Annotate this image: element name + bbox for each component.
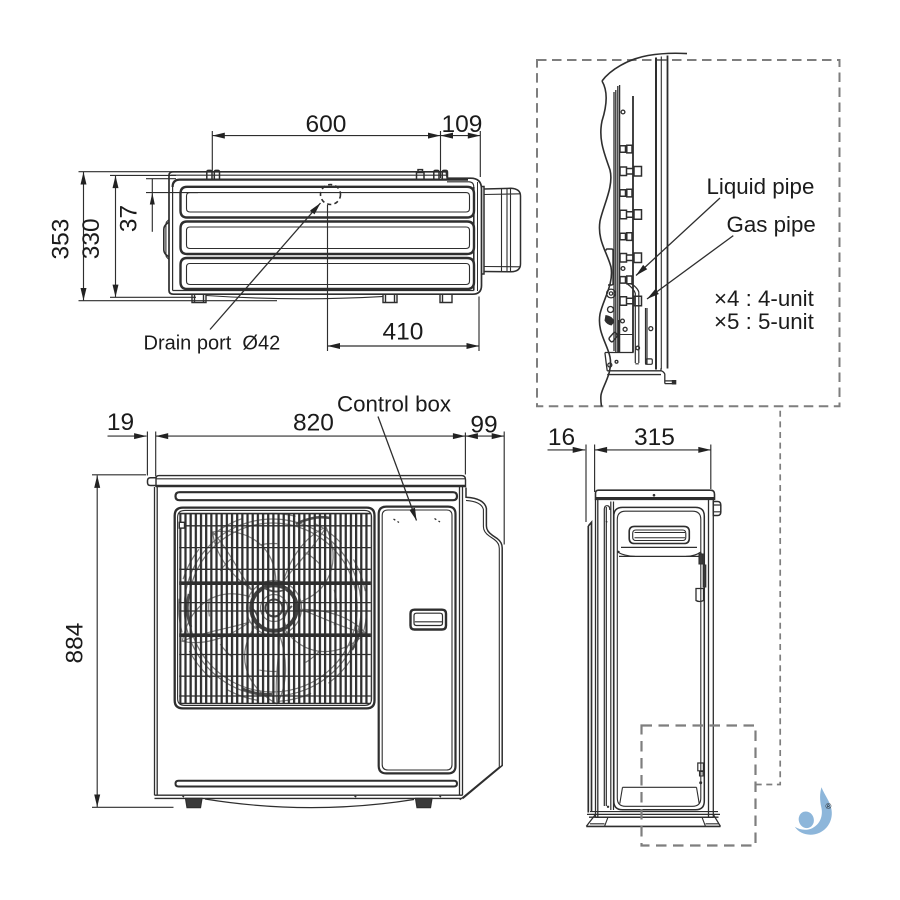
svg-text:Control box: Control box xyxy=(337,392,451,417)
svg-text:410: 410 xyxy=(383,319,424,346)
svg-text:Liquid pipe: Liquid pipe xyxy=(707,174,815,199)
svg-text:37: 37 xyxy=(116,205,143,232)
svg-text:109: 109 xyxy=(442,111,483,138)
svg-text:Drain port Ø42: Drain port Ø42 xyxy=(144,333,281,355)
svg-text:16: 16 xyxy=(548,424,575,451)
svg-text:884: 884 xyxy=(62,623,89,664)
svg-text:315: 315 xyxy=(634,424,675,451)
svg-text:19: 19 xyxy=(107,409,134,436)
svg-text:330: 330 xyxy=(78,218,105,259)
svg-text:®: ® xyxy=(826,802,832,811)
svg-text:Gas pipe: Gas pipe xyxy=(727,212,816,237)
svg-text:99: 99 xyxy=(470,412,497,439)
svg-text:×5 : 5-unit: ×5 : 5-unit xyxy=(714,309,815,334)
svg-text:600: 600 xyxy=(306,111,347,138)
svg-text:820: 820 xyxy=(293,410,334,437)
svg-text:×4 : 4-unit: ×4 : 4-unit xyxy=(714,286,815,311)
svg-text:353: 353 xyxy=(48,219,75,260)
